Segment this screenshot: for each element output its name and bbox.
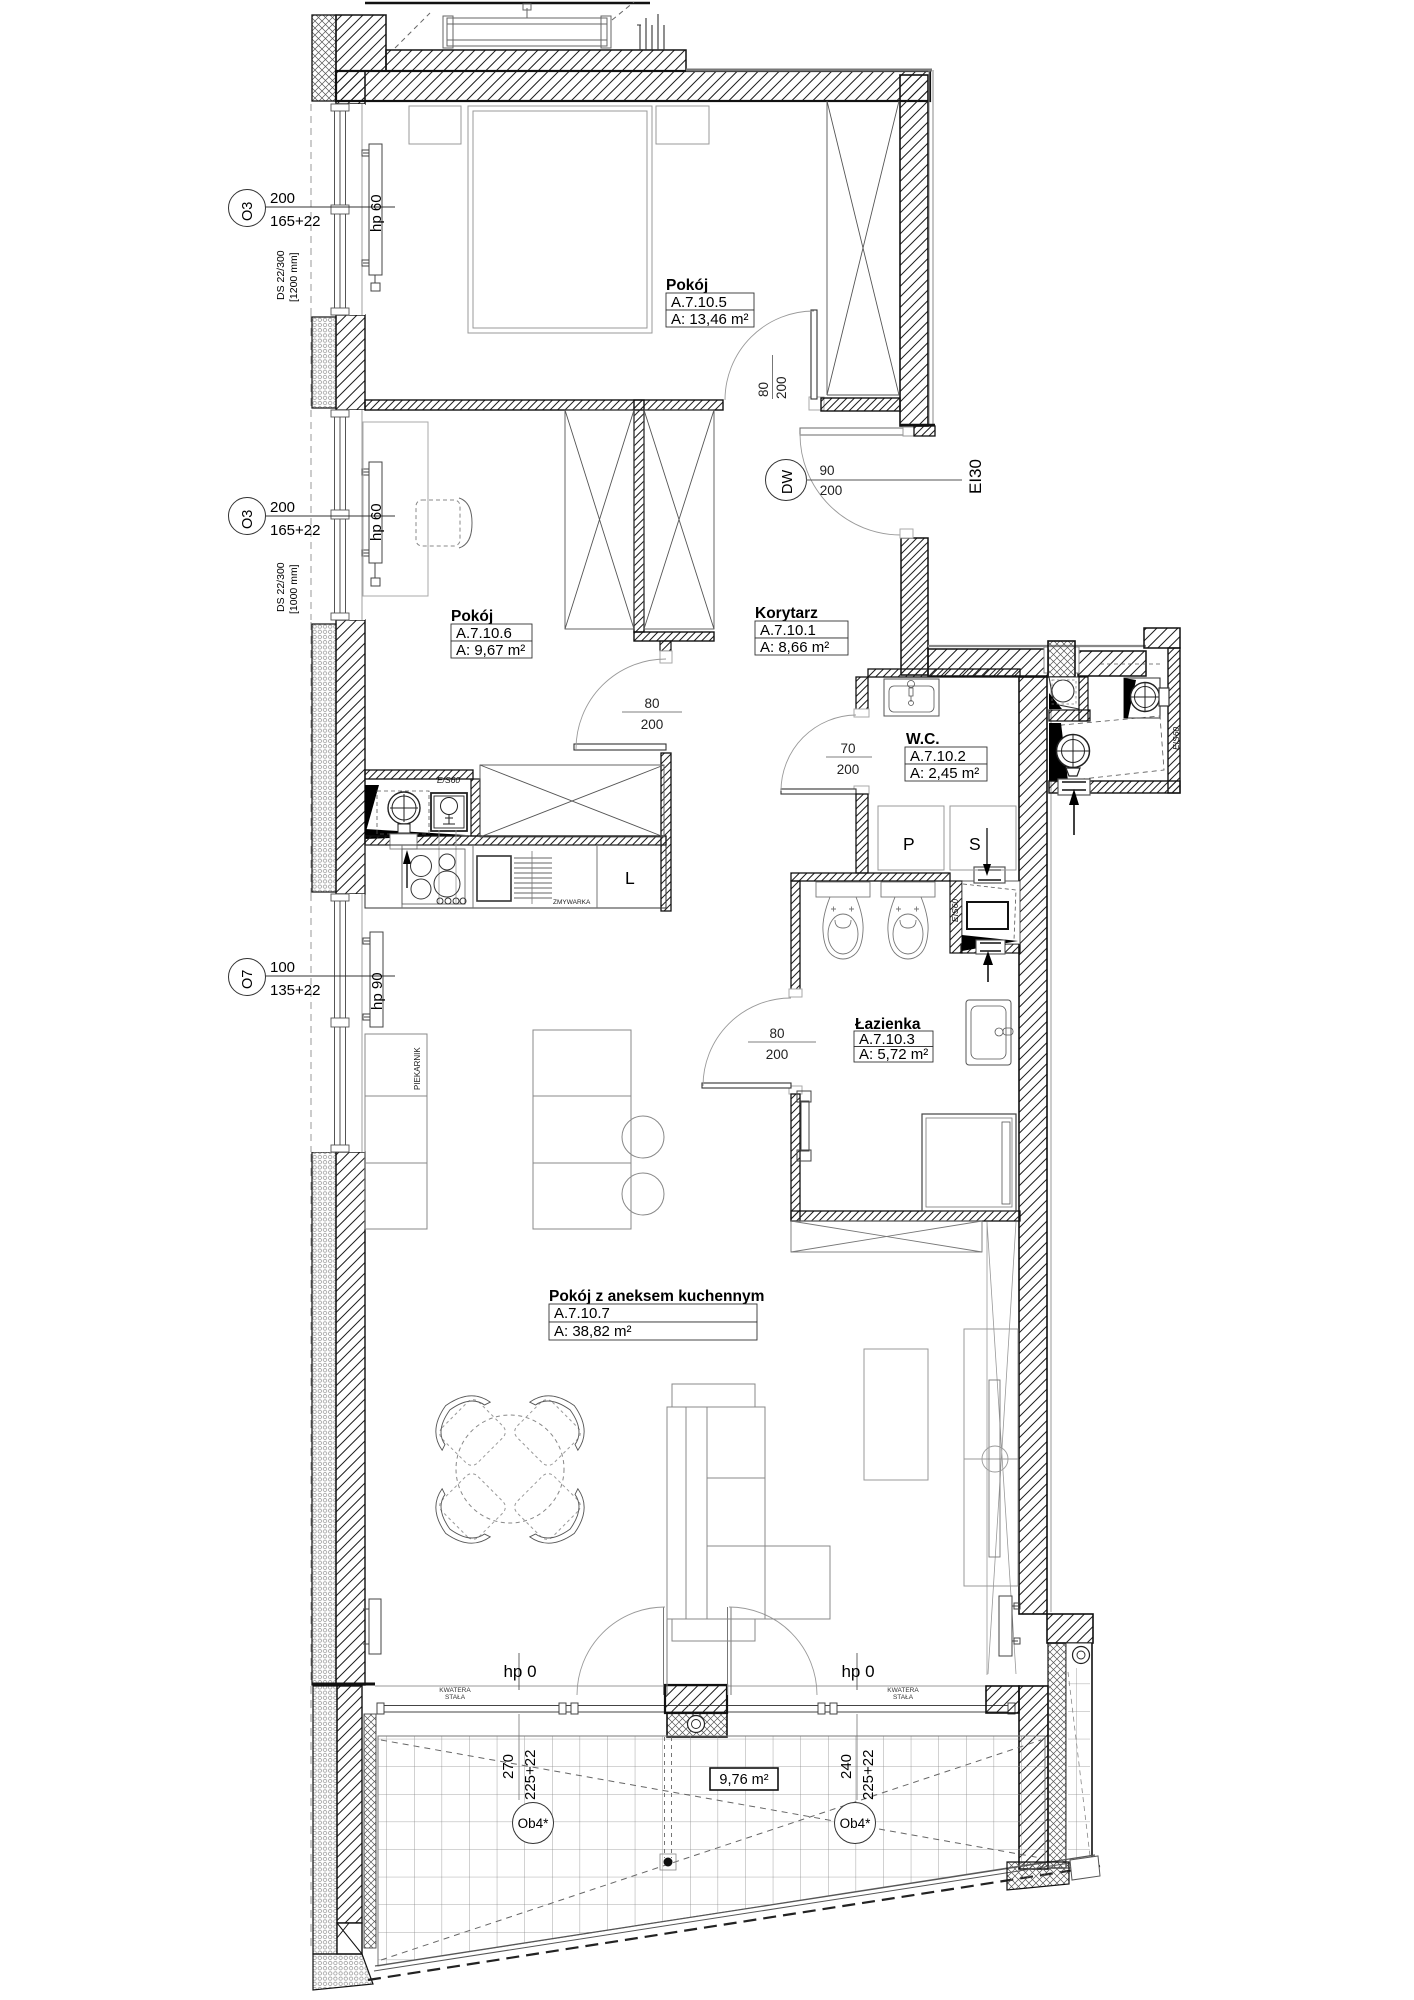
svg-text:90: 90 [819, 463, 834, 478]
svg-text:200: 200 [641, 717, 664, 732]
svg-text:A.7.10.7: A.7.10.7 [554, 1305, 610, 1322]
svg-text:165+22: 165+22 [270, 213, 320, 230]
svg-text:A: 38,82 m²: A: 38,82 m² [554, 1323, 632, 1340]
svg-text:Korytarz: Korytarz [755, 605, 818, 622]
svg-text:Ob4*: Ob4* [840, 1816, 872, 1831]
svg-text:EIS60: EIS60 [950, 899, 960, 922]
svg-text:KWATERA: KWATERA [439, 1687, 471, 1694]
svg-text:O7: O7 [240, 970, 256, 989]
svg-text:P: P [903, 834, 915, 854]
svg-text:L: L [625, 868, 635, 888]
svg-text:O3: O3 [240, 202, 256, 221]
svg-text:200: 200 [774, 376, 789, 399]
svg-text:9,76 m²: 9,76 m² [719, 1772, 768, 1788]
svg-text:PIEKARNIK: PIEKARNIK [413, 1047, 422, 1090]
svg-text:225+22: 225+22 [522, 1750, 539, 1800]
svg-text:STAŁA: STAŁA [445, 1694, 466, 1701]
svg-text:DS 22/300: DS 22/300 [275, 250, 287, 300]
svg-text:A.7.10.2: A.7.10.2 [910, 748, 966, 765]
svg-text:hp 0: hp 0 [841, 1662, 874, 1681]
svg-text:165+22: 165+22 [270, 522, 320, 539]
svg-text:225+22: 225+22 [860, 1750, 877, 1800]
svg-text:ZMYWARKA: ZMYWARKA [553, 899, 591, 906]
svg-text:W.C.: W.C. [906, 731, 940, 748]
svg-text:270: 270 [500, 1754, 517, 1779]
svg-text:DS 22/300: DS 22/300 [275, 562, 287, 612]
svg-text:EI30: EI30 [966, 459, 985, 494]
svg-text:80: 80 [769, 1026, 784, 1041]
svg-text:200: 200 [766, 1047, 789, 1062]
svg-text:80: 80 [644, 696, 659, 711]
svg-text:[1200 mm]: [1200 mm] [288, 252, 300, 302]
svg-text:100: 100 [270, 959, 295, 976]
svg-text:200: 200 [820, 483, 843, 498]
svg-text:A: 9,67 m²: A: 9,67 m² [456, 642, 525, 659]
svg-text:A: 13,46 m²: A: 13,46 m² [671, 311, 749, 328]
svg-text:Pokój: Pokój [451, 608, 493, 625]
svg-text:hp 60: hp 60 [368, 503, 385, 541]
svg-text:135+22: 135+22 [270, 982, 320, 999]
svg-text:[1000 mm]: [1000 mm] [288, 564, 300, 614]
svg-text:EIS60: EIS60 [1171, 727, 1181, 750]
svg-text:A.7.10.5: A.7.10.5 [671, 294, 727, 311]
svg-text:200: 200 [837, 762, 860, 777]
svg-text:A: 5,72 m²: A: 5,72 m² [859, 1046, 928, 1063]
svg-text:Ob4*: Ob4* [518, 1816, 550, 1831]
svg-text:DW: DW [780, 470, 796, 494]
svg-text:80: 80 [756, 382, 771, 397]
svg-text:KWATERA: KWATERA [887, 1687, 919, 1694]
svg-text:STAŁA: STAŁA [893, 1694, 914, 1701]
svg-text:Pokój z aneksem kuchennym: Pokój z aneksem kuchennym [549, 1288, 764, 1305]
svg-text:A: 8,66 m²: A: 8,66 m² [760, 639, 829, 656]
svg-text:hp 90: hp 90 [369, 972, 386, 1010]
svg-text:200: 200 [270, 190, 295, 207]
svg-text:A.7.10.1: A.7.10.1 [760, 622, 816, 639]
svg-text:S: S [969, 834, 981, 854]
svg-text:Pokój: Pokój [666, 277, 708, 294]
svg-text:200: 200 [270, 499, 295, 516]
svg-text:A: 2,45 m²: A: 2,45 m² [910, 765, 979, 782]
svg-text:hp 60: hp 60 [368, 194, 385, 232]
svg-text:70: 70 [840, 741, 855, 756]
svg-text:E/S60: E/S60 [437, 775, 460, 785]
svg-text:hp 0: hp 0 [503, 1662, 536, 1681]
svg-text:A.7.10.6: A.7.10.6 [456, 625, 512, 642]
svg-text:O3: O3 [240, 510, 256, 529]
svg-text:240: 240 [838, 1754, 855, 1779]
